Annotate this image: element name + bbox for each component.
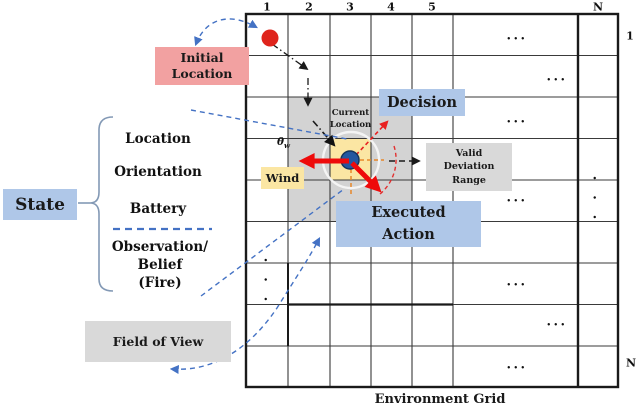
initial-location-label: Initial Location (155, 47, 249, 85)
wind-label: Wind (261, 167, 304, 189)
col-label-3: 3 (346, 1, 354, 14)
theta-subscript: w (284, 141, 290, 150)
row-label-n: N (626, 357, 636, 370)
col-label-1: 1 (263, 1, 271, 14)
initial-location-dot (262, 30, 279, 47)
state-item-observation: Observation/ (112, 239, 208, 255)
valid-deviation-range-label: Valid Deviation Range (426, 143, 512, 191)
ellipsis-mark: ... (506, 112, 527, 127)
row-label-1: 1 (626, 30, 634, 43)
state-item-fire: (Fire) (138, 275, 181, 291)
vertical-ellipsis-mark: ... (590, 176, 605, 235)
state-item-battery: Battery (130, 201, 186, 217)
vertical-ellipsis-mark: ... (261, 258, 276, 317)
state-box: State (3, 189, 77, 220)
ellipsis-mark: ... (546, 315, 567, 330)
ellipsis-mark: ... (546, 70, 567, 85)
decision-label: Decision (379, 89, 465, 116)
executed-action-label: Executed Action (336, 201, 481, 247)
theta-w-label: θw (277, 136, 290, 150)
state-item-belief: Belief (138, 257, 183, 273)
ellipsis-mark: ... (506, 358, 527, 373)
environment-grid-caption: Environment Grid (370, 390, 510, 408)
col-label-4: 4 (387, 1, 395, 14)
state-item-orientation: Orientation (114, 164, 202, 180)
col-label-2: 2 (305, 1, 313, 14)
state-item-location: Location (125, 131, 191, 147)
ellipsis-mark: ... (506, 191, 527, 206)
environment-grid-diagram: 1 2 3 4 5 N 1 N ... ... ... ... ... ... … (0, 0, 640, 410)
field-of-view-label: Field of View (85, 321, 231, 362)
theta-symbol: θ (277, 136, 284, 148)
ellipsis-mark: ... (506, 29, 527, 44)
col-label-5: 5 (428, 1, 436, 14)
col-label-n: N (593, 1, 603, 14)
ellipsis-mark: ... (506, 275, 527, 290)
state-brace (78, 117, 113, 291)
current-location-label: Current Location (330, 99, 371, 145)
